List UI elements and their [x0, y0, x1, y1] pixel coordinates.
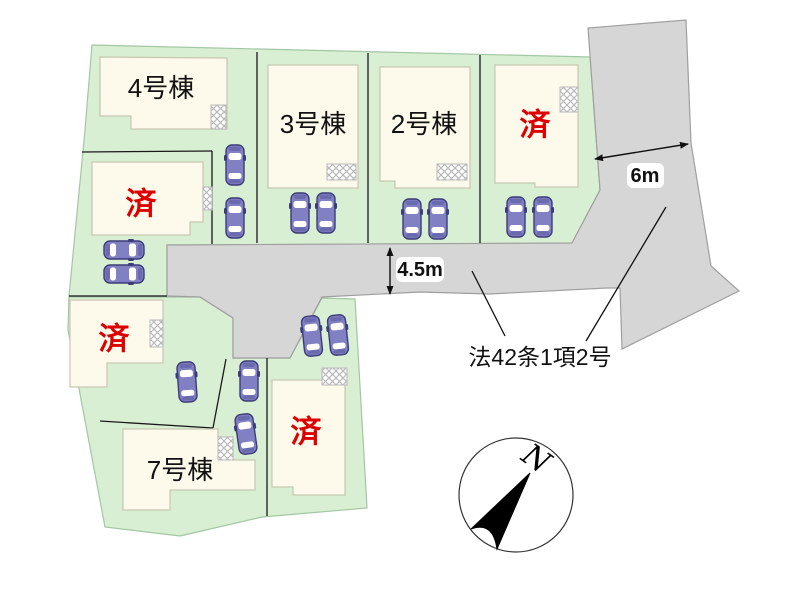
sold-label-unit-ne-sold: 済	[520, 108, 552, 143]
balcony-hatch-unit-sc-sold	[322, 368, 347, 385]
balcony-hatch-unit-3	[327, 164, 356, 180]
car-icon	[532, 197, 554, 237]
site-plan: 4号棟済3号棟2号棟済済7号棟済 4.5m6m法42条1項2号 N	[0, 0, 800, 600]
building-label-unit-2: 2号棟	[391, 109, 457, 139]
car-icon	[224, 198, 246, 238]
building-label-unit-7: 7号棟	[147, 455, 213, 485]
legal-note-label: 法42条1項2号	[468, 344, 611, 370]
balcony-hatch-unit-sw-sold	[150, 320, 163, 347]
car-icon	[104, 239, 144, 261]
car-icon	[238, 361, 260, 401]
dimension-label-road-width-4-5m: 4.5m	[397, 259, 443, 281]
balcony-hatch-unit-7	[218, 437, 233, 460]
building-label-unit-3: 3号棟	[280, 109, 346, 139]
balcony-hatch-unit-4	[211, 105, 226, 129]
car-icon	[315, 193, 337, 233]
dimension-label-road-width-6m: 6m	[631, 165, 660, 187]
balcony-hatch-unit-2	[437, 164, 467, 180]
site-plan-canvas: 4号棟済3号棟2号棟済済7号棟済 4.5m6m法42条1項2号 N	[0, 0, 800, 600]
car-icon	[401, 199, 423, 239]
car-icon	[505, 197, 527, 237]
balcony-hatch-unit-ne-sold	[560, 87, 578, 112]
building-label-unit-4: 4号棟	[128, 73, 194, 103]
car-icon	[175, 361, 200, 402]
car-icon	[104, 263, 144, 285]
car-icon	[289, 193, 311, 233]
sold-label-unit-nw-sold: 済	[126, 187, 158, 222]
sold-label-unit-sc-sold: 済	[291, 415, 323, 450]
balcony-hatch-unit-nw-sold	[203, 187, 212, 210]
car-icon	[224, 145, 246, 185]
sold-label-unit-sw-sold: 済	[99, 322, 131, 357]
car-icon	[427, 199, 449, 239]
